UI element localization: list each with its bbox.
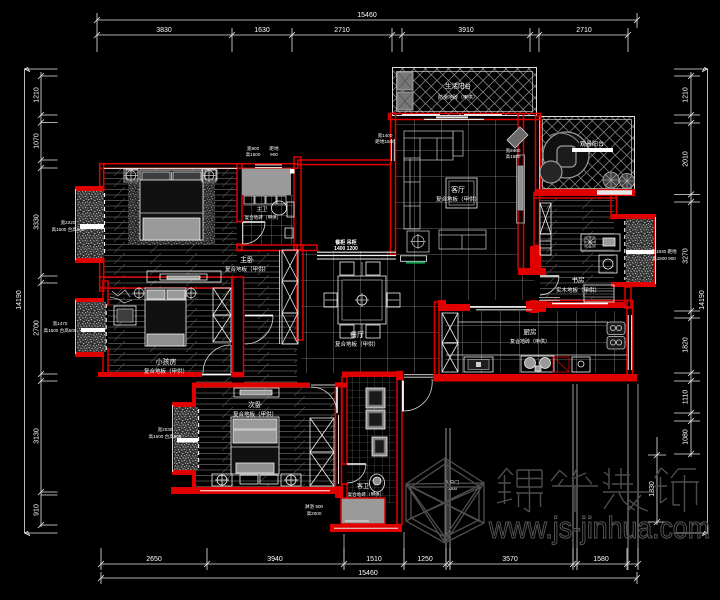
svg-text:3130: 3130 [34, 428, 41, 444]
svg-text:3330: 3330 [34, 214, 41, 230]
svg-text:观景阳台: 观景阳台 [580, 140, 604, 148]
svg-text:高1500 台高500: 高1500 台高500 [52, 226, 85, 233]
svg-text:2710: 2710 [576, 27, 592, 34]
svg-text:复合地板（甲供）: 复合地板（甲供） [225, 265, 269, 273]
svg-text:高2000: 高2000 [307, 510, 322, 517]
svg-text:3910: 3910 [458, 27, 474, 34]
svg-text:实木地板（甲供）: 实木地板（甲供） [556, 286, 600, 294]
svg-text:1630: 1630 [254, 27, 270, 34]
svg-text:1820: 1820 [683, 337, 690, 353]
svg-text:次卧: 次卧 [248, 400, 262, 409]
svg-text:1510: 1510 [366, 556, 382, 563]
svg-text:复合地砖（甲供）: 复合地砖（甲供） [510, 338, 550, 345]
svg-text:2650: 2650 [146, 556, 162, 563]
svg-text:高1500 900: 高1500 900 [652, 255, 676, 262]
svg-text:1080: 1080 [683, 429, 690, 445]
svg-text:高1500: 高1500 [506, 153, 521, 160]
svg-text:高1500 台高500: 高1500 台高500 [44, 327, 77, 334]
svg-text:生活阳台: 生活阳台 [445, 81, 471, 90]
svg-text:淋浴 900: 淋浴 900 [305, 503, 324, 510]
svg-text:2700: 2700 [34, 320, 41, 336]
svg-text:复合地砖（甲供）: 复合地砖（甲供） [348, 491, 385, 498]
svg-text:3940: 3940 [267, 556, 283, 563]
svg-text:1580: 1580 [593, 556, 609, 563]
svg-text:客厅: 客厅 [451, 185, 465, 194]
svg-text:2710: 2710 [334, 27, 350, 34]
svg-text:复合地板（甲供）: 复合地板（甲供） [144, 367, 188, 375]
svg-text:厨房: 厨房 [524, 327, 537, 336]
svg-text:1070: 1070 [34, 133, 41, 149]
svg-text:宽900: 宽900 [247, 145, 260, 152]
svg-text:宽2030: 宽2030 [158, 426, 173, 433]
svg-text:910: 910 [34, 504, 41, 516]
svg-text:宽1930 距地: 宽1930 距地 [651, 248, 677, 255]
svg-text:1210: 1210 [683, 87, 690, 103]
svg-text:3830: 3830 [156, 27, 172, 34]
svg-text:14190: 14190 [699, 290, 706, 310]
svg-text:小孩房: 小孩房 [156, 357, 177, 366]
svg-text:14190: 14190 [16, 290, 23, 310]
svg-text:复合地砖（甲供）: 复合地砖（甲供） [245, 214, 282, 221]
svg-text:客卫: 客卫 [357, 482, 369, 490]
svg-text:书房: 书房 [572, 275, 585, 284]
svg-text:复合地板（甲供）: 复合地板（甲供） [335, 340, 379, 348]
svg-text:距地: 距地 [269, 145, 279, 151]
svg-text:3570: 3570 [502, 556, 518, 563]
svg-text:900: 900 [270, 152, 278, 157]
svg-text:高1500: 高1500 [246, 151, 261, 158]
svg-text:入户门: 入户门 [445, 479, 459, 486]
svg-text:1110: 1110 [683, 390, 690, 405]
svg-text:宽2400: 宽2400 [506, 147, 521, 154]
svg-text:3270: 3270 [683, 248, 690, 264]
svg-text:高1500 台高500: 高1500 台高500 [149, 433, 182, 440]
svg-text:距地1500: 距地1500 [375, 138, 395, 144]
svg-text:复合地板（甲供）: 复合地板（甲供） [233, 410, 277, 418]
svg-text:主卫: 主卫 [256, 205, 268, 213]
svg-text:防滑地砖（甲供）: 防滑地砖（甲供） [438, 94, 478, 101]
svg-text:复合地板（甲供）: 复合地板（甲供） [436, 195, 480, 203]
svg-text:1210: 1210 [34, 87, 41, 103]
svg-text:1400 1200: 1400 1200 [334, 246, 358, 252]
svg-text:15460: 15460 [358, 570, 378, 577]
svg-text:宽1400: 宽1400 [378, 132, 393, 139]
svg-text:1250: 1250 [417, 556, 433, 563]
svg-text:宽1470: 宽1470 [53, 320, 68, 327]
svg-text:1830: 1830 [649, 481, 656, 497]
svg-text:餐厅: 餐厅 [350, 330, 364, 339]
svg-text:15460: 15460 [357, 12, 377, 19]
svg-text:餐柜 吊柜: 餐柜 吊柜 [334, 239, 356, 246]
svg-text:www.js-jinhua.com: www.js-jinhua.com [488, 510, 710, 545]
svg-text:主卧: 主卧 [240, 255, 254, 264]
svg-text:2010: 2010 [683, 151, 690, 167]
svg-text:宽2220: 宽2220 [61, 219, 76, 226]
